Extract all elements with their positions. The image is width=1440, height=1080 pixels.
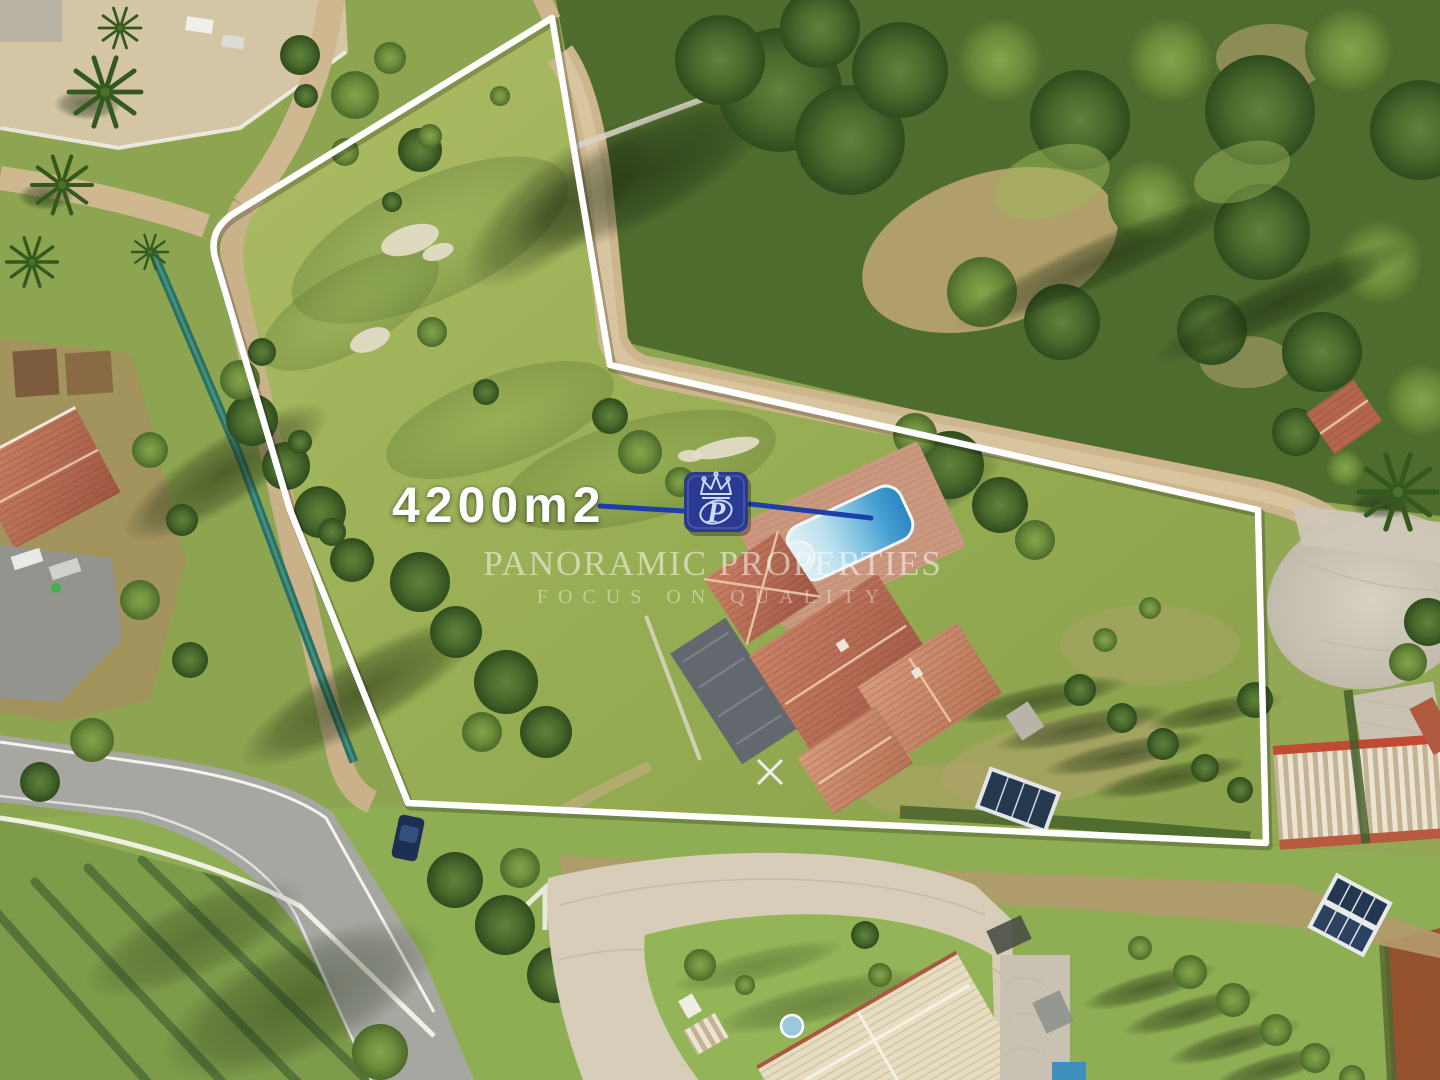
jacuzzi [781, 1015, 803, 1037]
aerial-scene: P [0, 0, 1440, 1080]
area-label: 4200m2 [392, 480, 606, 530]
watermark-tagline: FOCUS ON QUALITY [537, 586, 889, 609]
green-bin [51, 583, 61, 593]
watermark-brand-name: PANORAMIC PROPERTIES [483, 544, 943, 584]
aerial-photo: P 4200m2 PANORAMIC PROPERTIES FOCUS ON Q… [0, 0, 1440, 1080]
bottom-pool-corner [1052, 1062, 1086, 1080]
logo-monogram: P [706, 496, 726, 529]
